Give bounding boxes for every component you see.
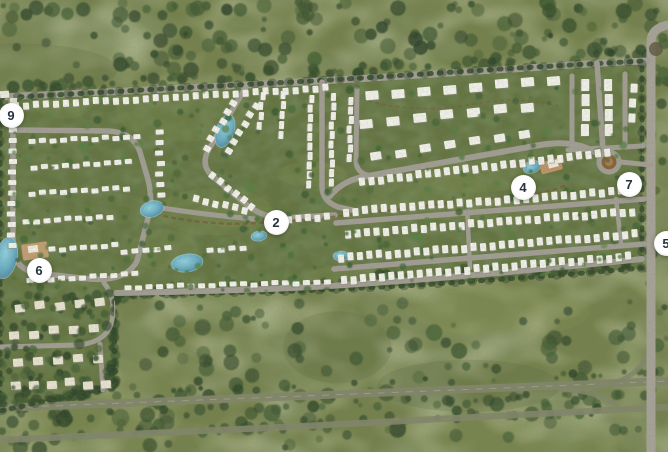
map-marker-2[interactable]: 2 — [264, 210, 289, 235]
map-marker-label: 9 — [7, 109, 14, 122]
map-marker-6[interactable]: 6 — [27, 258, 52, 283]
map-markers-layer: 245679 — [0, 0, 668, 452]
map-marker-label: 5 — [662, 237, 668, 250]
map-marker-7[interactable]: 7 — [617, 172, 642, 197]
map-marker-5[interactable]: 5 — [654, 231, 668, 256]
map-marker-label: 7 — [625, 178, 632, 191]
map-marker-9[interactable]: 9 — [0, 103, 24, 128]
map-marker-label: 2 — [272, 216, 279, 229]
map-marker-label: 4 — [519, 181, 526, 194]
map-marker-4[interactable]: 4 — [511, 175, 536, 200]
master-plan-map: 245679 — [0, 0, 668, 452]
map-marker-label: 6 — [35, 264, 42, 277]
